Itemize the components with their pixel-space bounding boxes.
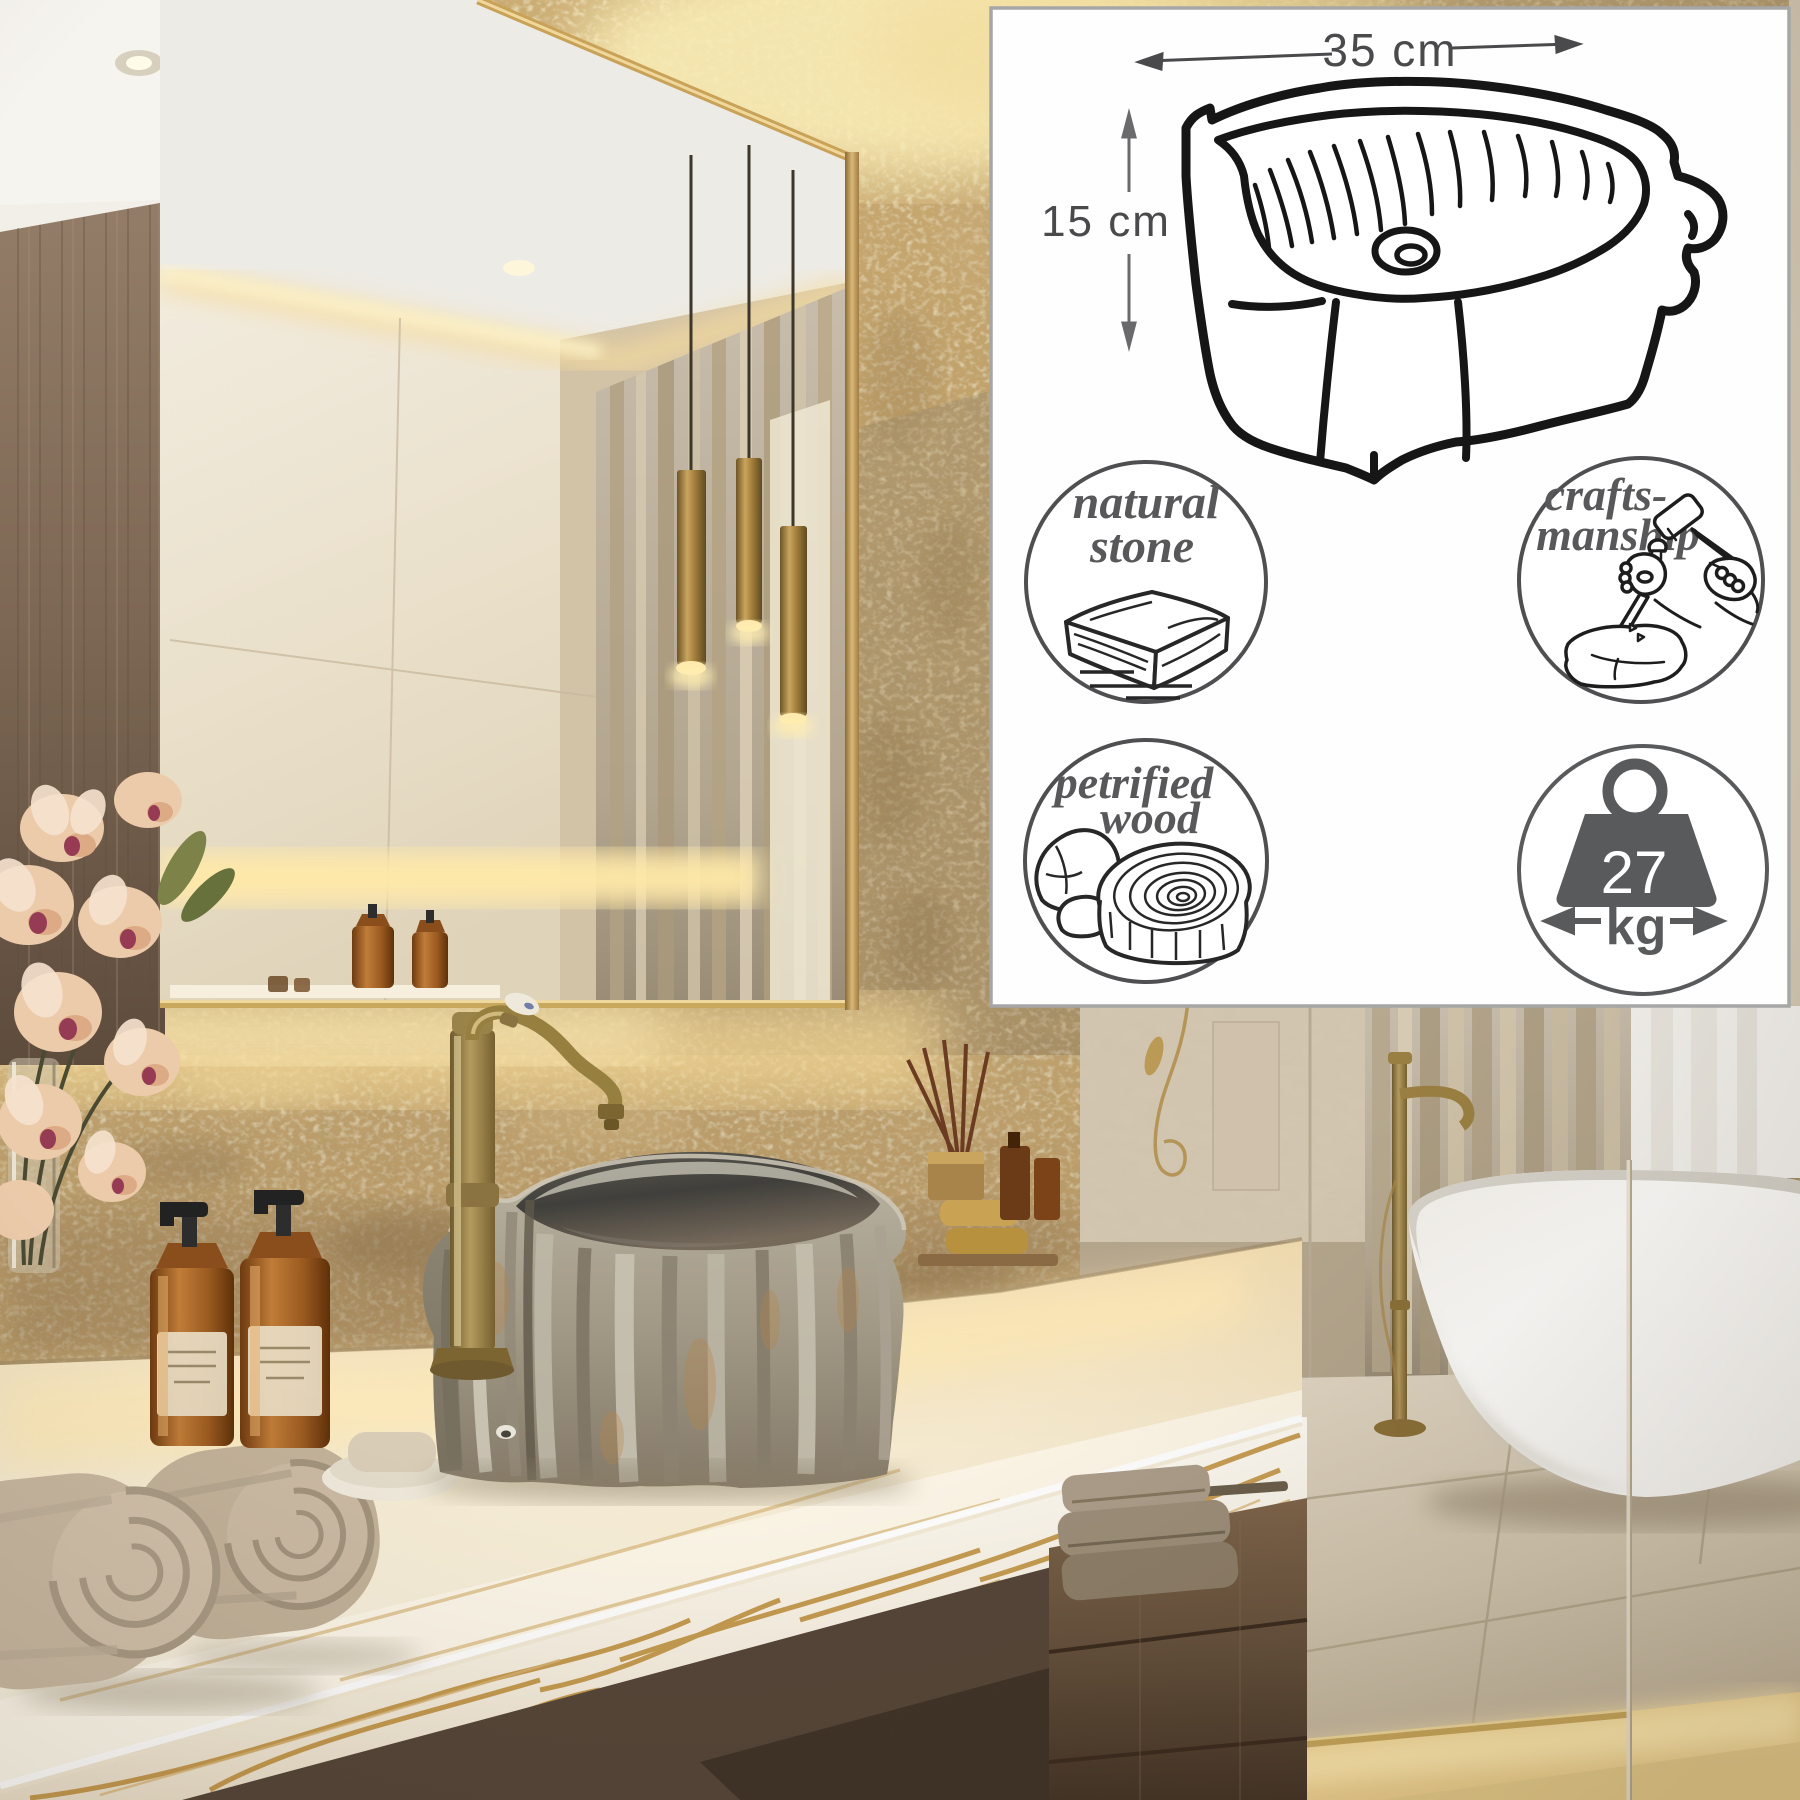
svg-text:wood: wood: [1100, 792, 1201, 843]
svg-text:kg: kg: [1606, 898, 1667, 956]
svg-text:27: 27: [1601, 839, 1668, 906]
svg-text:stone: stone: [1089, 520, 1194, 573]
svg-text:15 cm: 15 cm: [1041, 197, 1171, 246]
svg-text:35 cm: 35 cm: [1322, 24, 1457, 76]
